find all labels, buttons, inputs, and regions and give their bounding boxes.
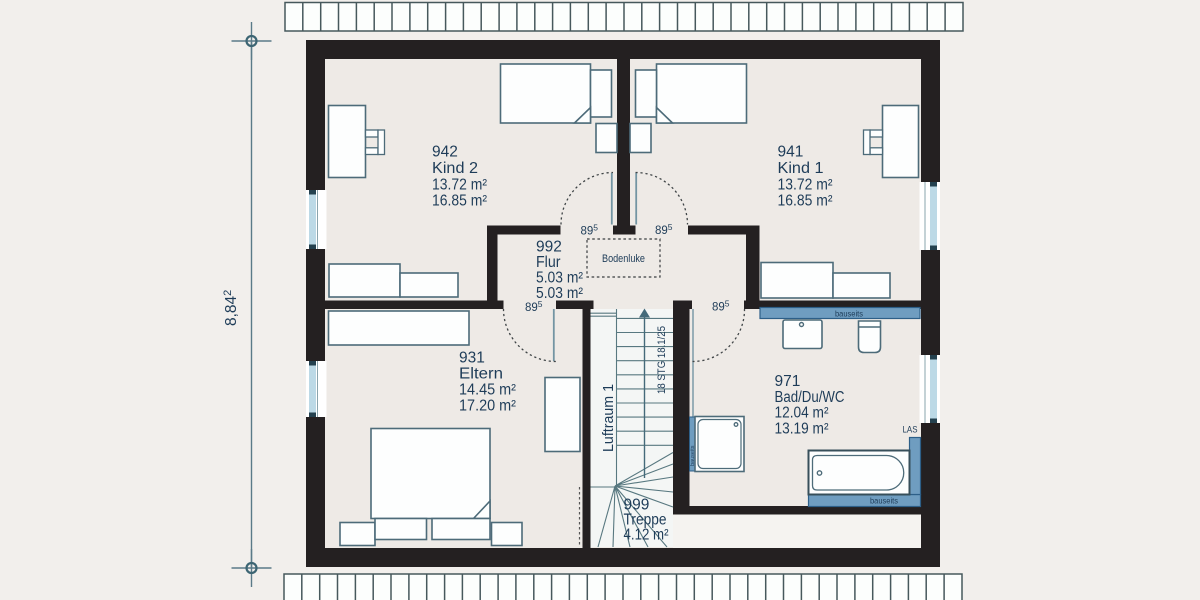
svg-text:971: 971 <box>775 373 801 390</box>
svg-text:941: 941 <box>778 144 804 161</box>
svg-text:17.20 m²: 17.20 m² <box>459 398 516 415</box>
svg-text:bauseits: bauseits <box>835 310 863 319</box>
svg-text:Flur: Flur <box>536 254 561 271</box>
svg-text:14.45 m²: 14.45 m² <box>459 382 516 399</box>
svg-text:12.04 m²: 12.04 m² <box>775 405 829 422</box>
svg-text:16.85 m²: 16.85 m² <box>432 193 487 210</box>
svg-text:16.85 m²: 16.85 m² <box>778 193 833 210</box>
svg-text:13.72 m²: 13.72 m² <box>432 176 487 193</box>
svg-text:4.12 m²: 4.12 m² <box>624 527 669 544</box>
svg-text:Kind 2: Kind 2 <box>432 160 478 177</box>
svg-text:931: 931 <box>459 350 485 367</box>
svg-text:Bad/Du/WC: Bad/Du/WC <box>775 389 845 406</box>
svg-text:Kind 1: Kind 1 <box>778 160 824 177</box>
svg-text:bauseits: bauseits <box>870 497 898 506</box>
svg-text:LAS: LAS <box>903 425 918 436</box>
svg-text:992: 992 <box>536 239 562 256</box>
svg-text:13.19 m²: 13.19 m² <box>775 420 829 437</box>
svg-text:5.03 m²: 5.03 m² <box>536 285 583 302</box>
svg-text:Bodenluke: Bodenluke <box>602 253 645 265</box>
svg-text:942: 942 <box>432 144 458 161</box>
svg-text:Eltern: Eltern <box>459 366 503 383</box>
svg-text:13.72 m²: 13.72 m² <box>778 176 833 193</box>
svg-text:5.03 m²: 5.03 m² <box>536 270 583 287</box>
svg-text:Luftraum 1: Luftraum 1 <box>600 384 617 452</box>
svg-text:18 STG 18.1/25: 18 STG 18.1/25 <box>656 326 668 394</box>
